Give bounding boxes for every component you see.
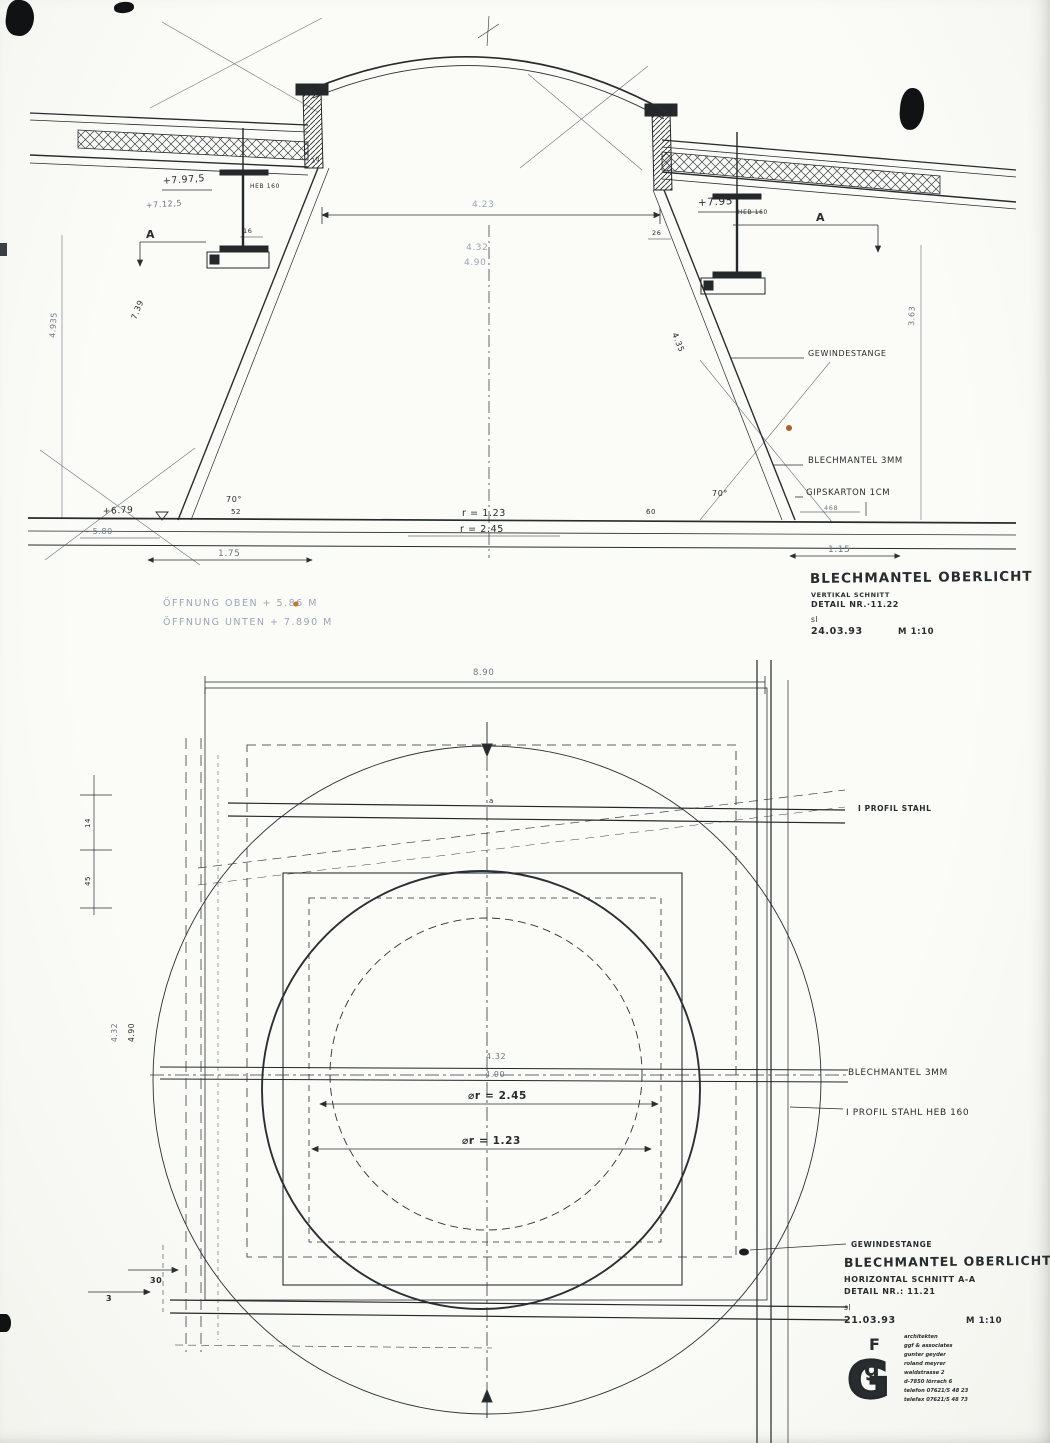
dim-right-edge: 468 <box>824 504 838 512</box>
horizontal-section-drawing: 8.90 4.32 4.90 ⌀r = 2.45 ⌀r = 1.23 14 45… <box>0 660 1050 1443</box>
stamp-line: telefon 07621/5 48 23 <box>904 1388 969 1394</box>
plan-dim-s3: 30 <box>150 1276 162 1285</box>
plan-subtitle: HORIZONTAL SCHNITT A-A <box>844 1275 976 1284</box>
gewindestange-dot <box>739 1249 749 1256</box>
section-detail-nr: DETAIL NR.·11.22 <box>811 600 899 609</box>
plan-initials: sl <box>844 1303 851 1312</box>
callout-gewindestange: GEWINDESTANGE <box>808 349 887 358</box>
dim-jamb-right: 26 <box>652 229 661 237</box>
plan-callout-i-profil: I PROFIL STAHL <box>858 804 932 813</box>
plan-scale: M 1:10 <box>966 1316 1002 1326</box>
section-title: BLECHMANTEL OBERLICHT <box>810 569 1033 587</box>
plan-dim-dia2: ⌀r = 1.23 <box>462 1135 521 1147</box>
plan-detail-nr: DETAIL NR.: 11.21 <box>844 1287 936 1296</box>
dim-bottom-left: 1.75 <box>218 549 240 559</box>
vertical-section-drawing: ÖFFNUNG OBEN + 5.86 M ÖFFNUNG UNTEN + 7.… <box>0 0 1050 660</box>
dome-arcs <box>310 16 667 119</box>
level-base-under: - 5.80 <box>86 527 113 536</box>
marker-a-left: A <box>146 228 155 241</box>
section-initials: sl <box>811 615 818 624</box>
plan-callout-gewindestange: GEWINDESTANGE <box>851 1240 932 1249</box>
scan-speck <box>786 425 792 431</box>
marker-a-right: A <box>816 211 825 224</box>
plan-dim-v1: 4.90 <box>127 1023 136 1042</box>
dim-mid-1: 4.32 <box>466 243 488 253</box>
section-scale: M 1:10 <box>898 627 934 637</box>
level-left-top: +7.97,5 <box>162 173 205 187</box>
stamp-line: roland meyrer <box>904 1361 946 1367</box>
label-heb-left: HEB 160 <box>250 183 280 190</box>
level-right: +7.95 <box>698 195 734 209</box>
level-left-mid: +7.12,5 <box>146 198 183 210</box>
blueprint-page: ÖFFNUNG OBEN + 5.86 M ÖFFNUNG UNTEN + 7.… <box>0 0 1050 1443</box>
section-date: 24.03.93 <box>811 626 863 637</box>
plan-callout-blechmantel: BLECHMANTEL 3MM <box>848 1068 948 1078</box>
architect-stamp: G g F architekten ggf & associates gunte… <box>847 1334 969 1411</box>
dim-r-top: r = 1.23 <box>462 508 506 519</box>
dimension-lines <box>240 207 671 239</box>
note-opening-bottom: ÖFFNUNG UNTEN + 7.890 M <box>163 617 333 628</box>
scan-speck <box>293 601 298 606</box>
plan-dim-w2: 4.90 <box>485 1070 505 1079</box>
dim-tick-left: 52 <box>231 508 241 516</box>
plan-marker-a: a <box>489 797 494 805</box>
roof-slab-left <box>30 113 308 175</box>
stamp-line: telefax 07621/5 48 73 <box>904 1397 968 1403</box>
dim-mid-2: 4.90 <box>464 258 486 268</box>
callout-blechmantel: BLECHMANTEL 3MM <box>808 456 903 466</box>
dim-top-width: 4.23 <box>472 200 494 210</box>
stamp-line: waldstrasse 2 <box>904 1370 945 1376</box>
dim-tick-right: 60 <box>646 508 656 516</box>
dim-angle-right: 70° <box>712 489 728 498</box>
plan-dim-s4: 3 <box>106 1294 112 1303</box>
callout-gipskarton: GIPSKARTON 1CM <box>806 488 890 498</box>
scan-artifact <box>0 1314 11 1332</box>
dim-jamb-left: 16 <box>243 227 252 235</box>
plan-dim-v2: 4.32 <box>110 1023 119 1042</box>
plan-dimension-lines <box>80 676 846 1292</box>
plan-dim-s2: 45 <box>84 876 92 886</box>
label-heb-right: HEB 160 <box>738 209 768 216</box>
plan-dim-dia1: ⌀r = 2.45 <box>468 1090 527 1102</box>
dim-angle-left: 70° <box>226 495 242 504</box>
plan-squares <box>205 688 767 1300</box>
plan-dim-s1: 14 <box>84 818 92 828</box>
dim-diag-right-inner: 4.35 <box>670 331 686 353</box>
stamp-monogram-g2: g <box>864 1357 880 1382</box>
plan-callout-i-profil-heb: I PROFIL STAHL HEB 160 <box>846 1108 969 1118</box>
base-lines <box>28 512 1016 560</box>
plan-title: BLECHMANTEL OBERLICHT <box>844 1253 1050 1270</box>
stamp-line: ggf & associates <box>904 1343 953 1349</box>
stamp-line: architekten <box>904 1334 938 1340</box>
construction-lines <box>40 18 921 565</box>
plan-date: 21.03.93 <box>844 1315 896 1326</box>
scan-artifact <box>0 243 7 256</box>
dim-bottom-right: 1.15 <box>828 545 850 555</box>
section-subtitle: VERTIKAL SCHNITT <box>811 591 890 599</box>
plan-dim-w1: 4.32 <box>486 1052 506 1061</box>
dim-r-bottom: r = 2.45 <box>460 524 504 535</box>
dim-diag-right-outer: 3.63 <box>907 306 917 327</box>
stamp-line: d-7850 lörrach 6 <box>904 1379 953 1385</box>
dim-diag-left-inner: 7.39 <box>130 299 146 321</box>
stamp-line: gunter geyder <box>904 1352 946 1358</box>
level-base: +6.79 <box>103 505 134 517</box>
plan-dim-overall: 8.90 <box>473 668 494 678</box>
dim-diag-left-outer: 4.935 <box>48 312 59 338</box>
stamp-monogram-f: F <box>869 1335 880 1354</box>
